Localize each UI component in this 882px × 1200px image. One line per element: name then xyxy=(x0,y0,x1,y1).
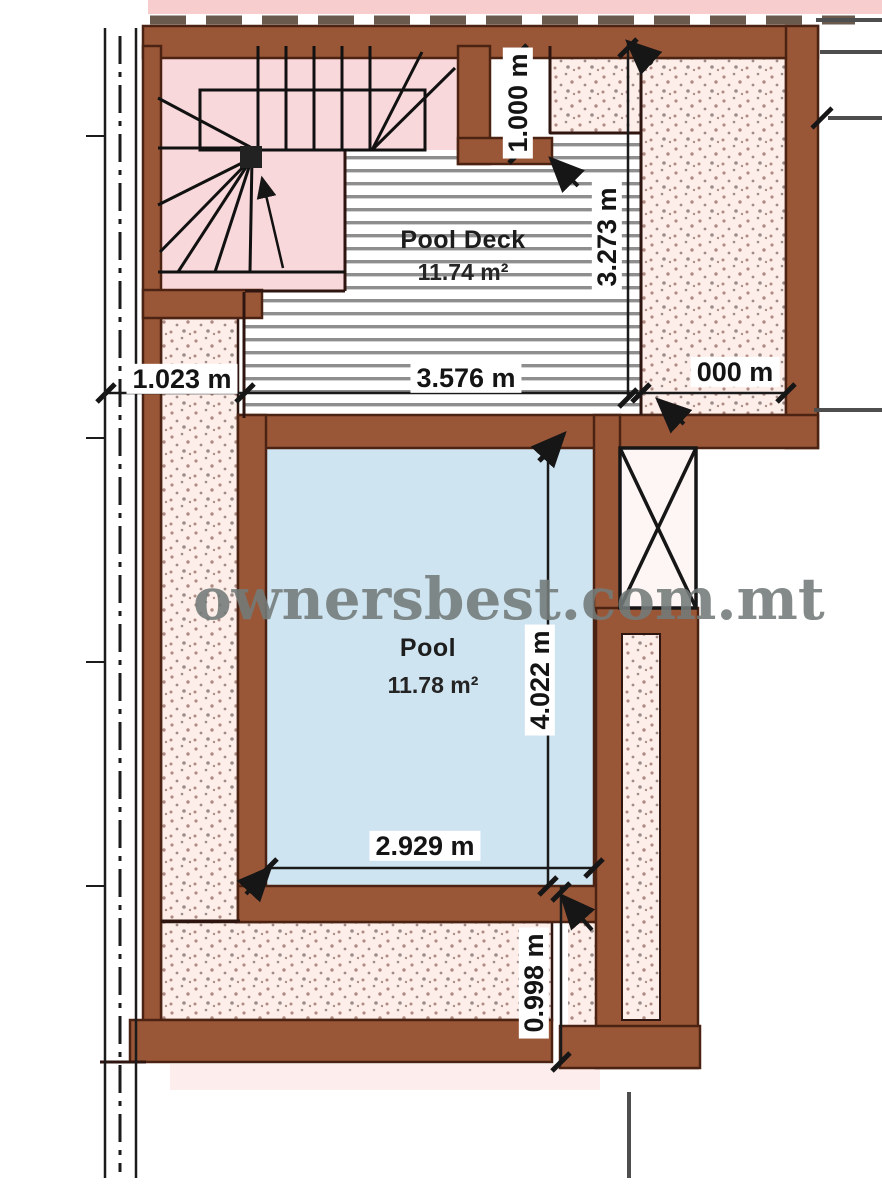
room-label-pool-deck: Pool Deck xyxy=(400,227,525,253)
room-area-pool: 11.78 m² xyxy=(388,673,479,697)
room-area-pool-deck: 11.74 m² xyxy=(418,260,509,284)
floor-plan: Pool Deck 11.74 m² Pool 11.78 m² 1.000 m… xyxy=(0,0,882,1200)
dimension-niche-top: 1.000 m xyxy=(503,47,533,158)
room-label-pool: Pool xyxy=(400,635,456,661)
dimension-pool-width: 2.929 m xyxy=(369,831,480,861)
dimension-right-width: 000 m xyxy=(691,357,780,387)
watermark: ownersbest.com.mt xyxy=(193,570,793,628)
dimension-deck-width: 3.576 m xyxy=(410,363,521,393)
shaft-stipple-strip xyxy=(622,634,660,1020)
dimension-bottom-height: 0.998 m xyxy=(519,927,549,1038)
left-boundary-line xyxy=(86,28,136,1178)
dimension-deck-height: 3.273 m xyxy=(592,181,622,292)
dimension-left-width: 1.023 m xyxy=(126,364,237,394)
dimension-pool-height: 4.022 m xyxy=(525,624,555,735)
